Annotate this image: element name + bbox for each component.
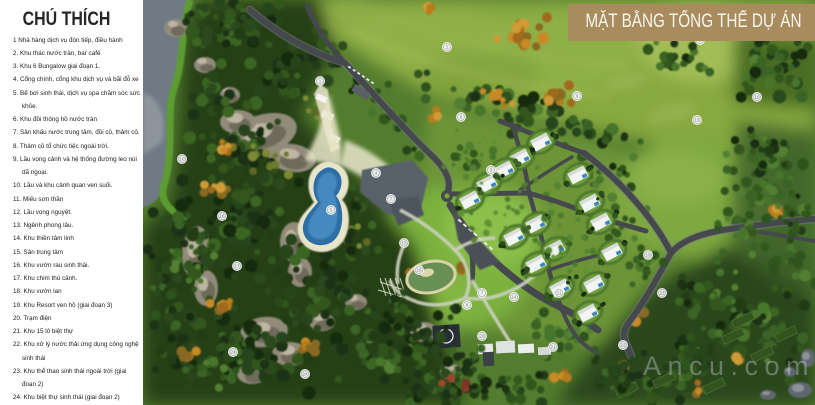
- svg-text:21: 21: [556, 291, 562, 296]
- svg-text:19: 19: [754, 95, 760, 100]
- svg-text:19: 19: [645, 253, 651, 258]
- svg-text:Ancu.com: Ancu.com: [643, 351, 815, 381]
- svg-text:23: 23: [659, 291, 665, 296]
- svg-text:24: 24: [230, 350, 236, 355]
- svg-text:17: 17: [234, 264, 240, 269]
- svg-text:16: 16: [219, 214, 225, 219]
- svg-text:22: 22: [620, 343, 626, 348]
- svg-text:14: 14: [511, 295, 517, 300]
- svg-text:15: 15: [401, 241, 407, 246]
- svg-text:16: 16: [416, 268, 422, 273]
- svg-text:20: 20: [479, 334, 485, 339]
- svg-text:21: 21: [550, 345, 556, 350]
- svg-text:19: 19: [694, 118, 700, 123]
- svg-text:10: 10: [179, 157, 185, 162]
- svg-text:24: 24: [302, 372, 308, 377]
